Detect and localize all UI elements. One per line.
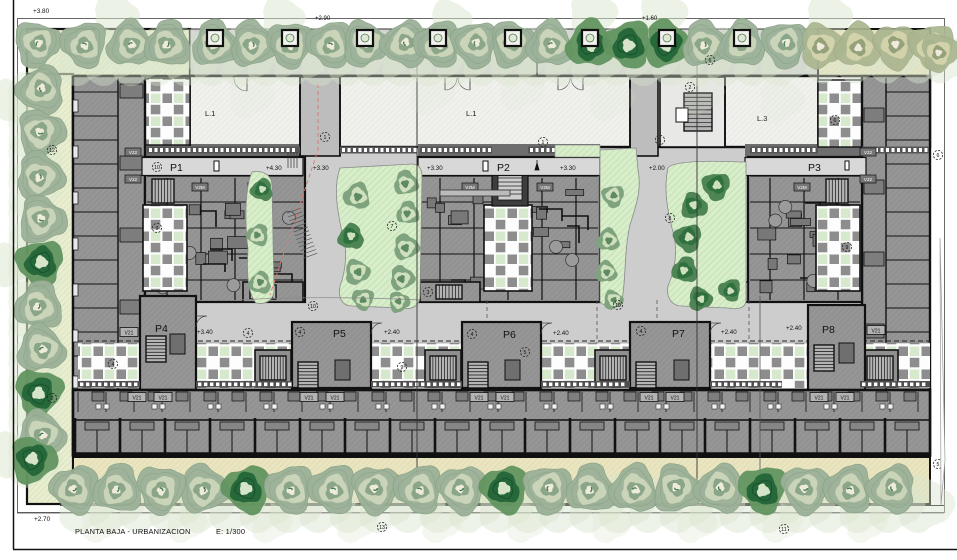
svg-text:9: 9 — [401, 365, 404, 371]
svg-text:+3.80: +3.80 — [33, 8, 50, 15]
svg-text:4: 4 — [640, 329, 643, 335]
svg-text:5: 5 — [937, 462, 940, 468]
svg-text:+3.30: +3.30 — [427, 165, 443, 172]
svg-text:4: 4 — [112, 362, 115, 368]
svg-text:V21: V21 — [671, 395, 680, 401]
svg-text:V21: V21 — [159, 395, 168, 401]
svg-text:V22: V22 — [864, 177, 873, 182]
svg-text:+3.40: +3.40 — [197, 329, 213, 336]
svg-text:+2.40: +2.40 — [721, 329, 737, 336]
svg-text:P2: P2 — [497, 162, 510, 174]
svg-text:1: 1 — [324, 135, 327, 141]
svg-text:P7: P7 — [672, 328, 685, 340]
svg-text:V2M: V2M — [465, 185, 475, 190]
svg-text:12: 12 — [49, 148, 55, 154]
svg-text:9: 9 — [156, 226, 159, 232]
svg-text:V21: V21 — [125, 330, 134, 336]
svg-text:4: 4 — [299, 330, 302, 336]
svg-text:2: 2 — [689, 85, 692, 91]
svg-text:V21: V21 — [475, 395, 484, 401]
svg-text:L.1: L.1 — [466, 109, 476, 118]
svg-text:+2.00: +2.00 — [649, 165, 665, 172]
svg-text:V22: V22 — [129, 150, 138, 155]
svg-text:P5: P5 — [333, 328, 346, 340]
svg-text:L.1: L.1 — [205, 109, 215, 118]
svg-text:V22: V22 — [129, 177, 138, 182]
svg-text:2: 2 — [51, 396, 54, 402]
svg-text:P1: P1 — [170, 162, 183, 174]
svg-text:V21: V21 — [645, 395, 654, 401]
svg-text:+2.40: +2.40 — [553, 330, 569, 337]
svg-text:6: 6 — [937, 153, 940, 159]
svg-text:3: 3 — [427, 290, 430, 296]
svg-text:10: 10 — [154, 165, 160, 171]
svg-text:V2M: V2M — [195, 185, 205, 190]
svg-text:13: 13 — [379, 525, 385, 531]
svg-text:5: 5 — [524, 350, 527, 356]
svg-text:V21: V21 — [815, 395, 824, 401]
svg-text:V2M: V2M — [797, 185, 807, 190]
svg-text:V21: V21 — [133, 395, 142, 401]
svg-text:V2M: V2M — [540, 185, 550, 190]
svg-text:6: 6 — [834, 118, 837, 124]
svg-text:10: 10 — [310, 304, 316, 310]
svg-text:+2.40: +2.40 — [384, 329, 400, 336]
svg-text:V21: V21 — [872, 328, 881, 334]
svg-text:+2.70: +2.70 — [34, 516, 51, 523]
svg-text:+2.90: +2.90 — [315, 16, 331, 22]
svg-text:P3: P3 — [808, 162, 821, 174]
svg-text:+1.60: +1.60 — [642, 16, 658, 22]
svg-text:+3.30: +3.30 — [560, 165, 576, 172]
svg-text:V21: V21 — [305, 395, 314, 401]
svg-text:+4.30: +4.30 — [266, 165, 282, 172]
svg-text:1: 1 — [659, 138, 662, 144]
svg-text:9: 9 — [846, 245, 849, 251]
svg-text:4: 4 — [471, 332, 474, 338]
svg-text:P6: P6 — [503, 329, 516, 341]
svg-text:P8: P8 — [822, 324, 835, 336]
svg-text:8: 8 — [669, 216, 672, 222]
svg-text:+2.40: +2.40 — [786, 325, 802, 332]
svg-text:7: 7 — [391, 224, 394, 230]
svg-text:1: 1 — [542, 140, 545, 146]
svg-text:PLANTA BAJA - URBANIZACION: PLANTA BAJA - URBANIZACION — [75, 527, 191, 536]
svg-text:6: 6 — [709, 58, 712, 64]
svg-text:E: 1/300: E: 1/300 — [216, 527, 245, 536]
svg-text:P4: P4 — [155, 323, 168, 335]
svg-text:V22: V22 — [864, 150, 873, 155]
svg-text:V21: V21 — [841, 395, 850, 401]
svg-text:11: 11 — [781, 527, 786, 533]
svg-text:10: 10 — [615, 303, 621, 309]
svg-text:+3.30: +3.30 — [313, 165, 329, 172]
svg-text:V21: V21 — [331, 395, 340, 401]
svg-text:V21: V21 — [501, 395, 510, 401]
svg-text:4: 4 — [247, 331, 250, 337]
